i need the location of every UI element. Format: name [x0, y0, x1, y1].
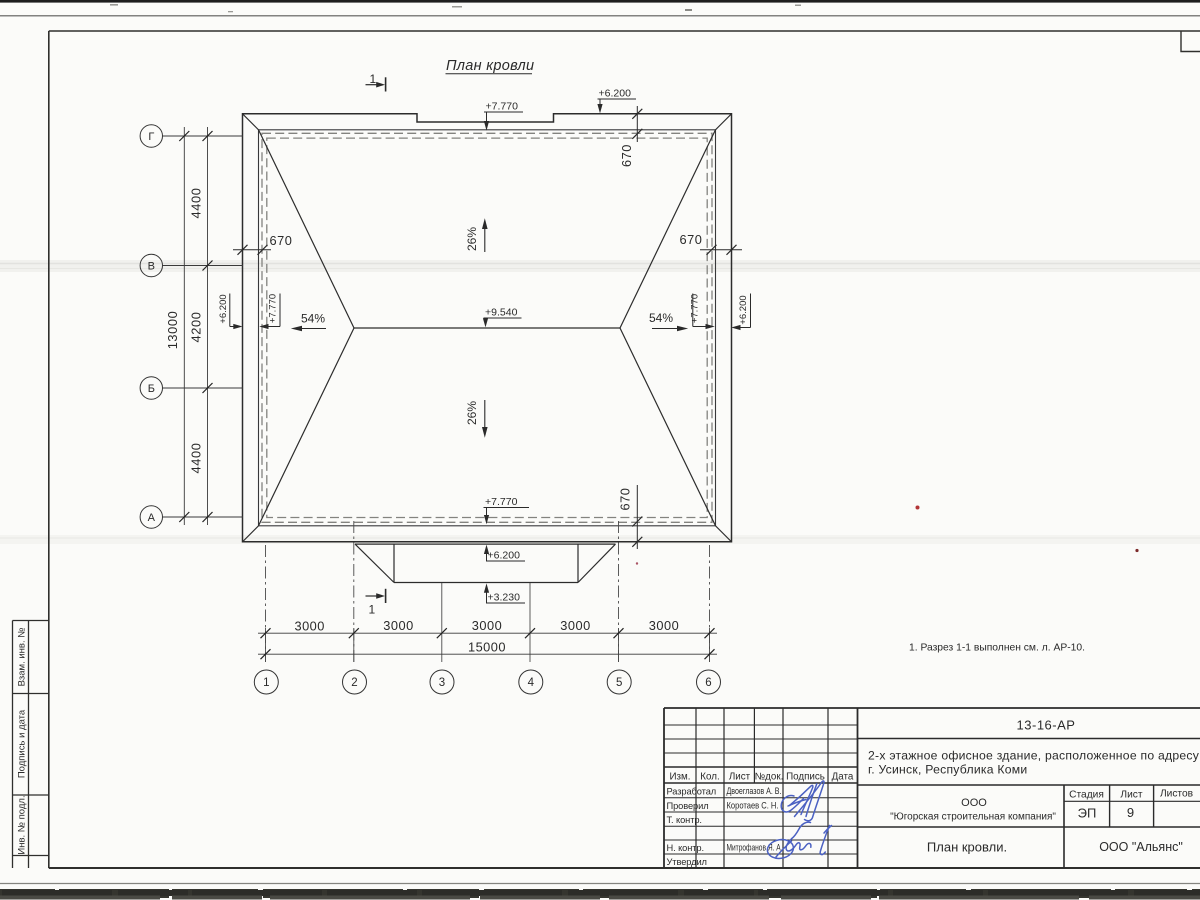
svg-text:670: 670 — [270, 233, 293, 248]
svg-text:3: 3 — [439, 677, 445, 689]
svg-text:4200: 4200 — [189, 312, 204, 343]
svg-text:Коротаев С. Н.: Коротаев С. Н. — [727, 801, 779, 811]
svg-text:Подпись: Подпись — [786, 772, 825, 783]
svg-text:5: 5 — [616, 677, 622, 689]
svg-text:+6.200: +6.200 — [218, 294, 229, 323]
svg-text:г. Усинск, Республика Коми: г. Усинск, Республика Коми — [868, 763, 1027, 777]
svg-text:В: В — [148, 261, 155, 273]
svg-text:Б: Б — [148, 383, 155, 395]
svg-text:4: 4 — [528, 677, 535, 689]
svg-text:3000: 3000 — [294, 619, 324, 634]
svg-text:Н. контр.: Н. контр. — [667, 843, 704, 853]
svg-text:2: 2 — [351, 677, 357, 689]
svg-text:1: 1 — [370, 72, 377, 86]
svg-text:ООО: ООО — [961, 797, 987, 809]
svg-text:Проверил: Проверил — [667, 801, 709, 811]
svg-text:3000: 3000 — [472, 618, 502, 633]
svg-text:26%: 26% — [465, 401, 479, 425]
svg-text:+7.770: +7.770 — [485, 496, 518, 508]
svg-text:ЭП: ЭП — [1078, 806, 1097, 821]
svg-text:3000: 3000 — [649, 618, 679, 633]
svg-text:9: 9 — [1127, 805, 1134, 820]
svg-text:Стадия: Стадия — [1069, 790, 1104, 801]
svg-text:Взам. инв. №: Взам. инв. № — [17, 628, 28, 687]
svg-text:1. Разрез 1-1 выполнен см. л.: 1. Разрез 1-1 выполнен см. л. АР-10. — [909, 643, 1085, 654]
svg-text:2-х этажное офисное здание, ра: 2-х этажное офисное здание, расположенно… — [868, 749, 1200, 763]
svg-text:6: 6 — [705, 677, 711, 689]
svg-text:+7.770: +7.770 — [267, 294, 278, 323]
svg-text:+6.200: +6.200 — [738, 295, 749, 324]
svg-text:+6.200: +6.200 — [488, 550, 521, 562]
svg-text:26%: 26% — [465, 227, 479, 251]
svg-text:Утвердил: Утвердил — [667, 857, 707, 867]
svg-text:Двоеглазов А. В.: Двоеглазов А. В. — [727, 786, 782, 796]
svg-text:Кол.: Кол. — [700, 772, 719, 783]
svg-text:3000: 3000 — [383, 618, 413, 633]
svg-text:План кровли: План кровли — [446, 58, 534, 74]
svg-text:54%: 54% — [649, 311, 673, 325]
svg-text:670: 670 — [619, 144, 634, 167]
svg-text:ООО "Альянс": ООО "Альянс" — [1099, 840, 1183, 854]
svg-text:Дата: Дата — [832, 772, 854, 783]
svg-text:+6.200: +6.200 — [599, 88, 632, 100]
svg-text:+9.540: +9.540 — [485, 307, 518, 319]
svg-text:Инв. № подл.: Инв. № подл. — [17, 795, 28, 854]
svg-text:Лист: Лист — [1120, 790, 1142, 801]
svg-text:"Югорская строительная компани: "Югорская строительная компания" — [890, 812, 1056, 823]
svg-text:Т. контр.: Т. контр. — [667, 815, 702, 825]
svg-text:15000: 15000 — [468, 640, 506, 655]
svg-text:План кровли.: План кровли. — [927, 840, 1007, 855]
svg-text:+7.770: +7.770 — [486, 101, 519, 113]
svg-text:4400: 4400 — [189, 188, 204, 219]
svg-text:3000: 3000 — [560, 618, 590, 633]
svg-text:Г: Г — [148, 131, 154, 143]
svg-text:+3.230: +3.230 — [488, 592, 521, 604]
svg-text:А: А — [148, 512, 156, 524]
svg-text:№док.: №док. — [755, 772, 784, 783]
svg-text:Лист: Лист — [729, 772, 751, 783]
svg-text:670: 670 — [680, 232, 703, 247]
svg-text:+7.770: +7.770 — [689, 294, 700, 323]
svg-text:13-16-АР: 13-16-АР — [1017, 718, 1076, 733]
svg-text:13000: 13000 — [165, 311, 180, 350]
svg-text:Изм.: Изм. — [670, 772, 691, 783]
svg-text:1: 1 — [263, 677, 269, 689]
svg-text:4400: 4400 — [189, 443, 204, 474]
svg-text:54%: 54% — [301, 312, 325, 326]
svg-text:Митрофанов Я. А.: Митрофанов Я. А. — [727, 843, 783, 853]
svg-text:670: 670 — [618, 488, 633, 511]
svg-text:1: 1 — [369, 603, 376, 617]
svg-text:Листов: Листов — [1160, 789, 1193, 800]
svg-text:Подпись и дата: Подпись и дата — [17, 709, 28, 778]
svg-text:Разработал: Разработал — [667, 787, 717, 797]
